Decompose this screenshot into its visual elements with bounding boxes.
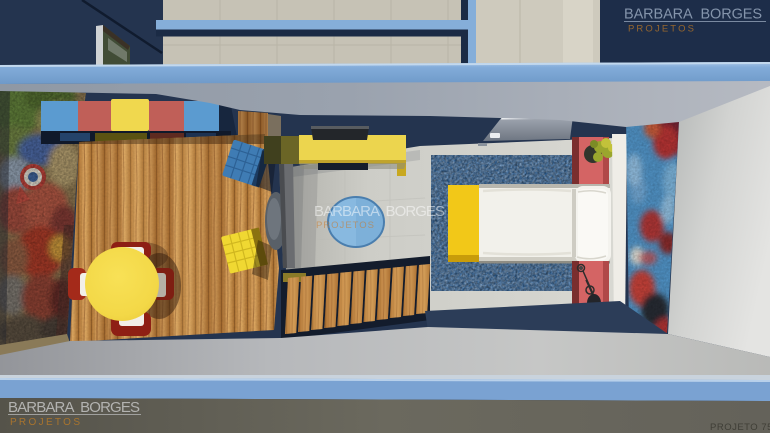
svg-text:P R O J E T O S: P R O J E T O S [628, 24, 694, 35]
svg-text:BARBARA BORGES: BARBARA BORGES [624, 7, 762, 23]
svg-text:P R O J E T O S: P R O J E T O S [316, 220, 374, 231]
svg-text:PROJETO 75: PROJETO 75 [710, 422, 770, 433]
svg-text:BARBARA BORGES: BARBARA BORGES [314, 203, 445, 220]
svg-text:P R O J E T O S: P R O J E T O S [10, 417, 80, 428]
svg-text:BARBARA BORGES: BARBARA BORGES [8, 399, 140, 416]
